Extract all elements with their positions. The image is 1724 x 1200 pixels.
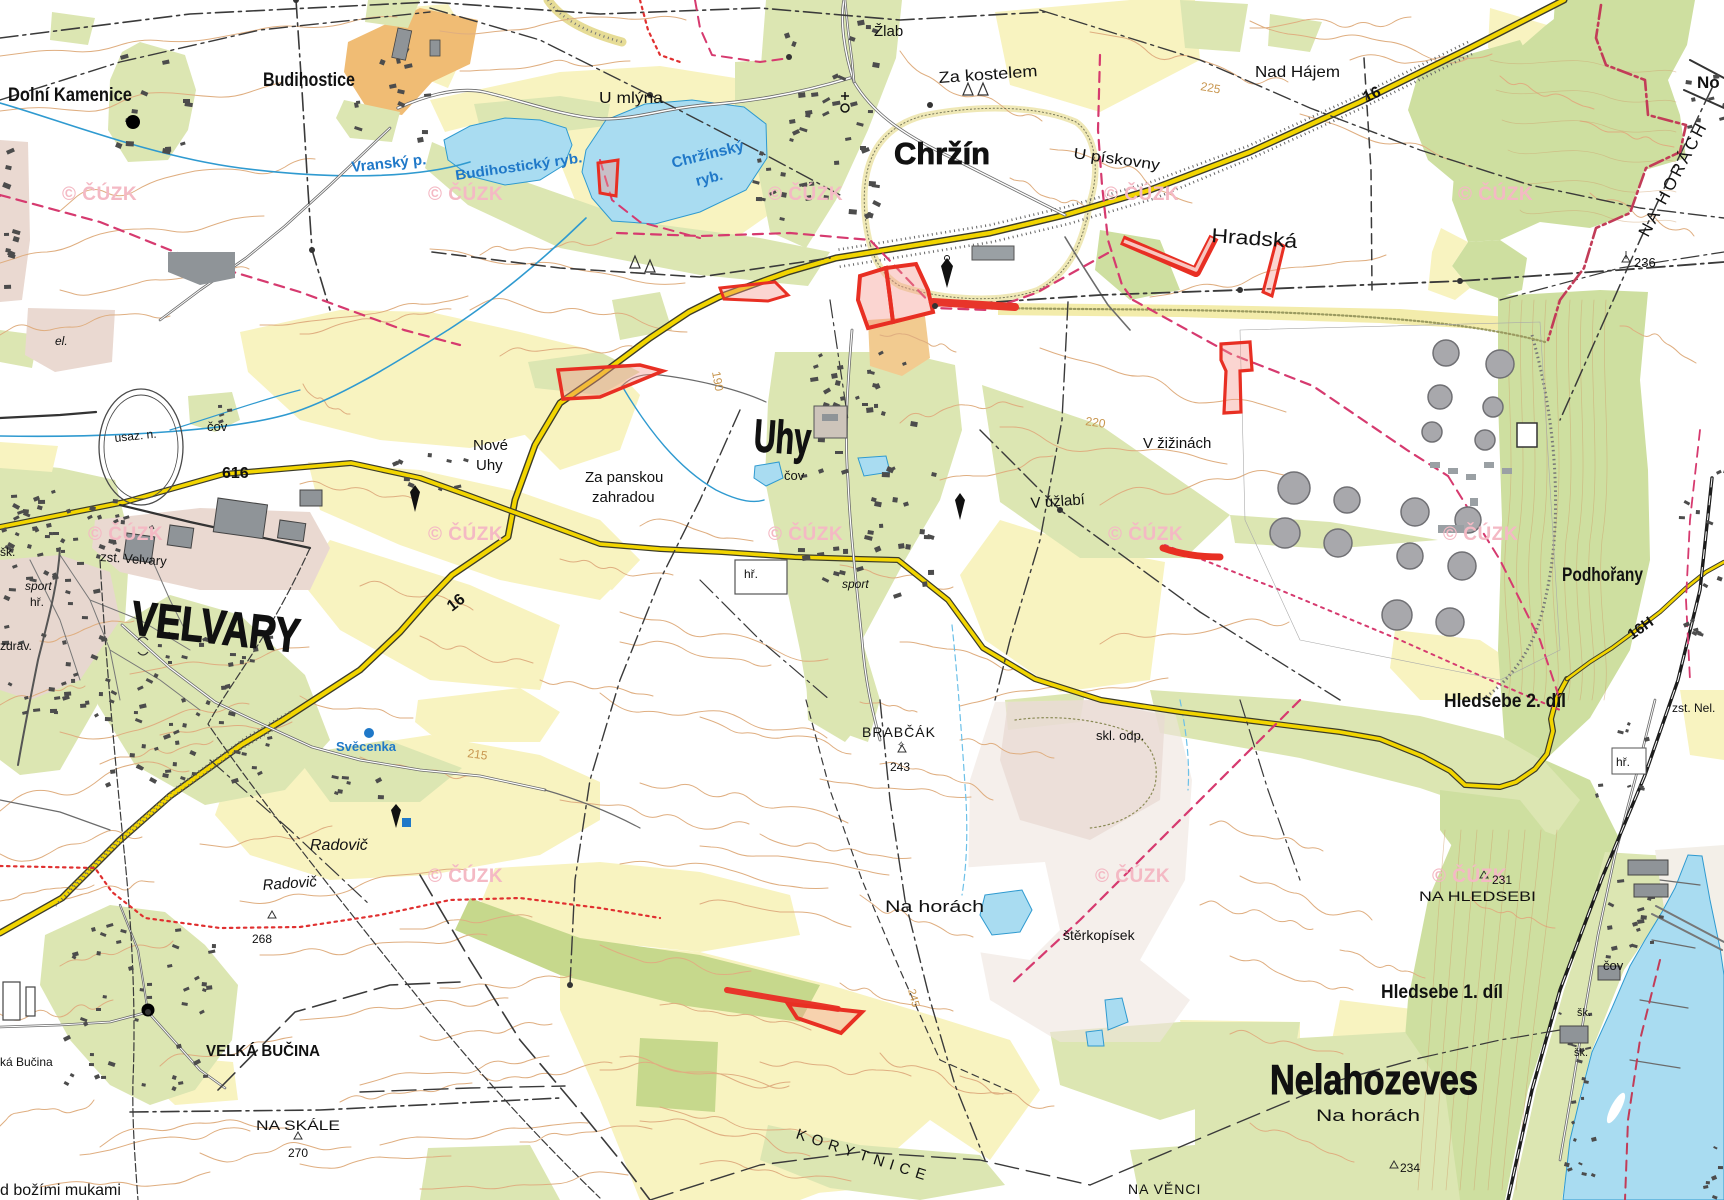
svg-text:Podhořany: Podhořany bbox=[1562, 565, 1643, 586]
svg-text:© ČÚZK: © ČÚZK bbox=[768, 523, 843, 545]
svg-text:© ČÚZK: © ČÚZK bbox=[768, 183, 843, 205]
svg-text:268: 268 bbox=[252, 932, 272, 946]
svg-text:čov: čov bbox=[207, 419, 228, 434]
svg-text:© ČÚZK: © ČÚZK bbox=[428, 183, 503, 205]
svg-text:zahradou: zahradou bbox=[592, 489, 655, 506]
svg-text:243: 243 bbox=[890, 760, 910, 774]
svg-text:270: 270 bbox=[288, 1146, 308, 1160]
svg-text:V žižinách: V žižinách bbox=[1143, 435, 1211, 452]
svg-text:sport: sport bbox=[25, 579, 52, 593]
svg-text:Budihostice: Budihostice bbox=[263, 70, 355, 91]
svg-text:Nelahozeves: Nelahozeves bbox=[1270, 1056, 1478, 1103]
svg-text:NA VĚNCI: NA VĚNCI bbox=[1128, 1181, 1201, 1197]
svg-text:zdrav.: zdrav. bbox=[0, 639, 32, 653]
svg-text:U mlýna: U mlýna bbox=[599, 90, 663, 107]
svg-text:sport: sport bbox=[842, 577, 869, 591]
svg-text:Hledsebe 1. díl: Hledsebe 1. díl bbox=[1381, 982, 1503, 1003]
svg-text:Chržín: Chržín bbox=[894, 136, 990, 171]
svg-text:Nad Hájem: Nad Hájem bbox=[1255, 64, 1340, 81]
svg-text:hř.: hř. bbox=[744, 567, 758, 581]
svg-text:© ČÚZK: © ČÚZK bbox=[1104, 183, 1179, 205]
svg-text:šk.: šk. bbox=[0, 545, 15, 559]
svg-text:zst. Nel.: zst. Nel. bbox=[1672, 701, 1715, 715]
svg-text:d božími mukami: d božími mukami bbox=[0, 1182, 121, 1199]
svg-text:Dolní Kamenice: Dolní Kamenice bbox=[8, 85, 132, 106]
svg-text:© ČÚZK: © ČÚZK bbox=[1108, 523, 1183, 545]
svg-text:Na horách: Na horách bbox=[1316, 1106, 1420, 1125]
svg-text:616: 616 bbox=[222, 465, 249, 482]
svg-text:© ČÚZK: © ČÚZK bbox=[428, 523, 503, 545]
svg-text:© ČÚZK: © ČÚZK bbox=[1443, 523, 1518, 545]
svg-text:NA SKÁLE: NA SKÁLE bbox=[256, 1117, 340, 1133]
svg-text:Uhy: Uhy bbox=[476, 457, 503, 474]
svg-text:BRABČÁK: BRABČÁK bbox=[862, 724, 936, 740]
svg-text:© ČÚZK: © ČÚZK bbox=[62, 183, 137, 205]
svg-text:Uhy: Uhy bbox=[752, 409, 813, 465]
svg-text:© ČÚZK: © ČÚZK bbox=[1458, 183, 1533, 205]
svg-text:šk.: šk. bbox=[1574, 1047, 1588, 1059]
svg-text:No: No bbox=[1697, 73, 1720, 92]
svg-text:ká Bučina: ká Bučina bbox=[0, 1055, 53, 1069]
svg-text:Hledsebe 2. díl: Hledsebe 2. díl bbox=[1444, 691, 1566, 712]
svg-text:Žlab: Žlab bbox=[874, 23, 903, 40]
svg-text:Za panskou: Za panskou bbox=[585, 469, 663, 486]
svg-text:hř.: hř. bbox=[1616, 755, 1630, 769]
svg-text:Radovič: Radovič bbox=[310, 837, 368, 854]
svg-text:231: 231 bbox=[1492, 873, 1512, 887]
svg-text:© ČÚZK: © ČÚZK bbox=[1095, 865, 1170, 887]
svg-text:© ČÚZK: © ČÚZK bbox=[88, 523, 163, 545]
svg-text:štěrkopísek: štěrkopísek bbox=[1063, 927, 1136, 943]
svg-text:el.: el. bbox=[55, 334, 68, 348]
svg-text:čov: čov bbox=[1603, 958, 1624, 973]
svg-text:✧: ✧ bbox=[897, 740, 905, 751]
svg-text:Nové: Nové bbox=[473, 437, 508, 454]
svg-text:236: 236 bbox=[1634, 255, 1656, 270]
svg-text:hř.: hř. bbox=[30, 595, 44, 609]
svg-text:220: 220 bbox=[1085, 414, 1107, 431]
svg-text:skl. odp.: skl. odp. bbox=[1096, 728, 1144, 743]
svg-text:215: 215 bbox=[467, 746, 489, 763]
svg-text:234: 234 bbox=[1400, 1161, 1420, 1175]
svg-text:čov: čov bbox=[784, 468, 805, 483]
svg-text:VELKÁ BUČINA: VELKÁ BUČINA bbox=[206, 1041, 320, 1060]
svg-text:© ČÚZK: © ČÚZK bbox=[428, 865, 503, 887]
svg-text:Svěcenka: Svěcenka bbox=[336, 739, 397, 754]
svg-text:NA HLEDSEBI: NA HLEDSEBI bbox=[1419, 888, 1536, 904]
svg-text:Na horách: Na horách bbox=[885, 897, 984, 916]
svg-text:šk.: šk. bbox=[1577, 1007, 1591, 1019]
